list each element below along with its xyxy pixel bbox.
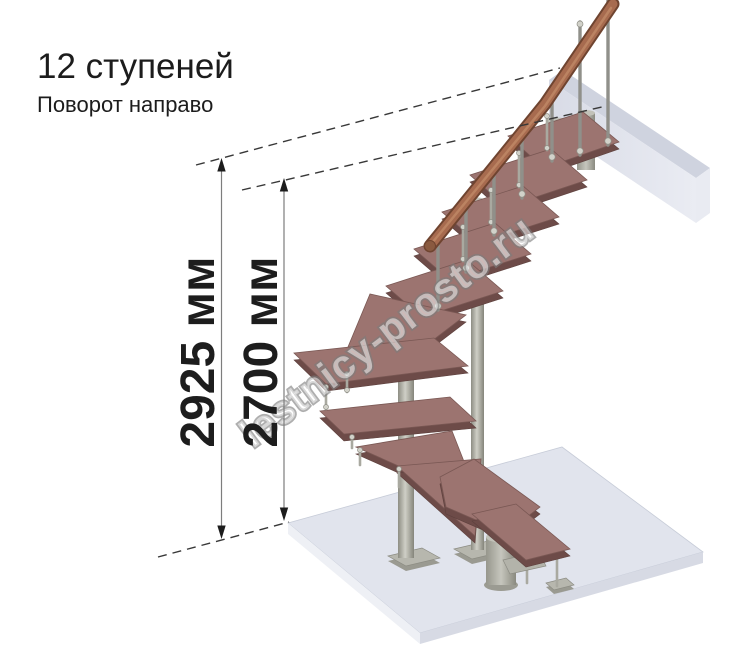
page-title: 12 ступеней — [37, 47, 234, 86]
staircase-illustration: lestnicy-prosto.ru 2925 мм 2700 мм 12 ст… — [0, 0, 743, 655]
dimension-label-inner: 2700 мм — [235, 256, 288, 447]
page-subtitle: Поворот направо — [37, 92, 213, 117]
handrail-end-cap — [425, 241, 436, 252]
dimension-label-overall: 2925 мм — [172, 256, 225, 447]
illustration-canvas: lestnicy-prosto.ru 2925 мм 2700 мм 12 ст… — [0, 0, 743, 655]
